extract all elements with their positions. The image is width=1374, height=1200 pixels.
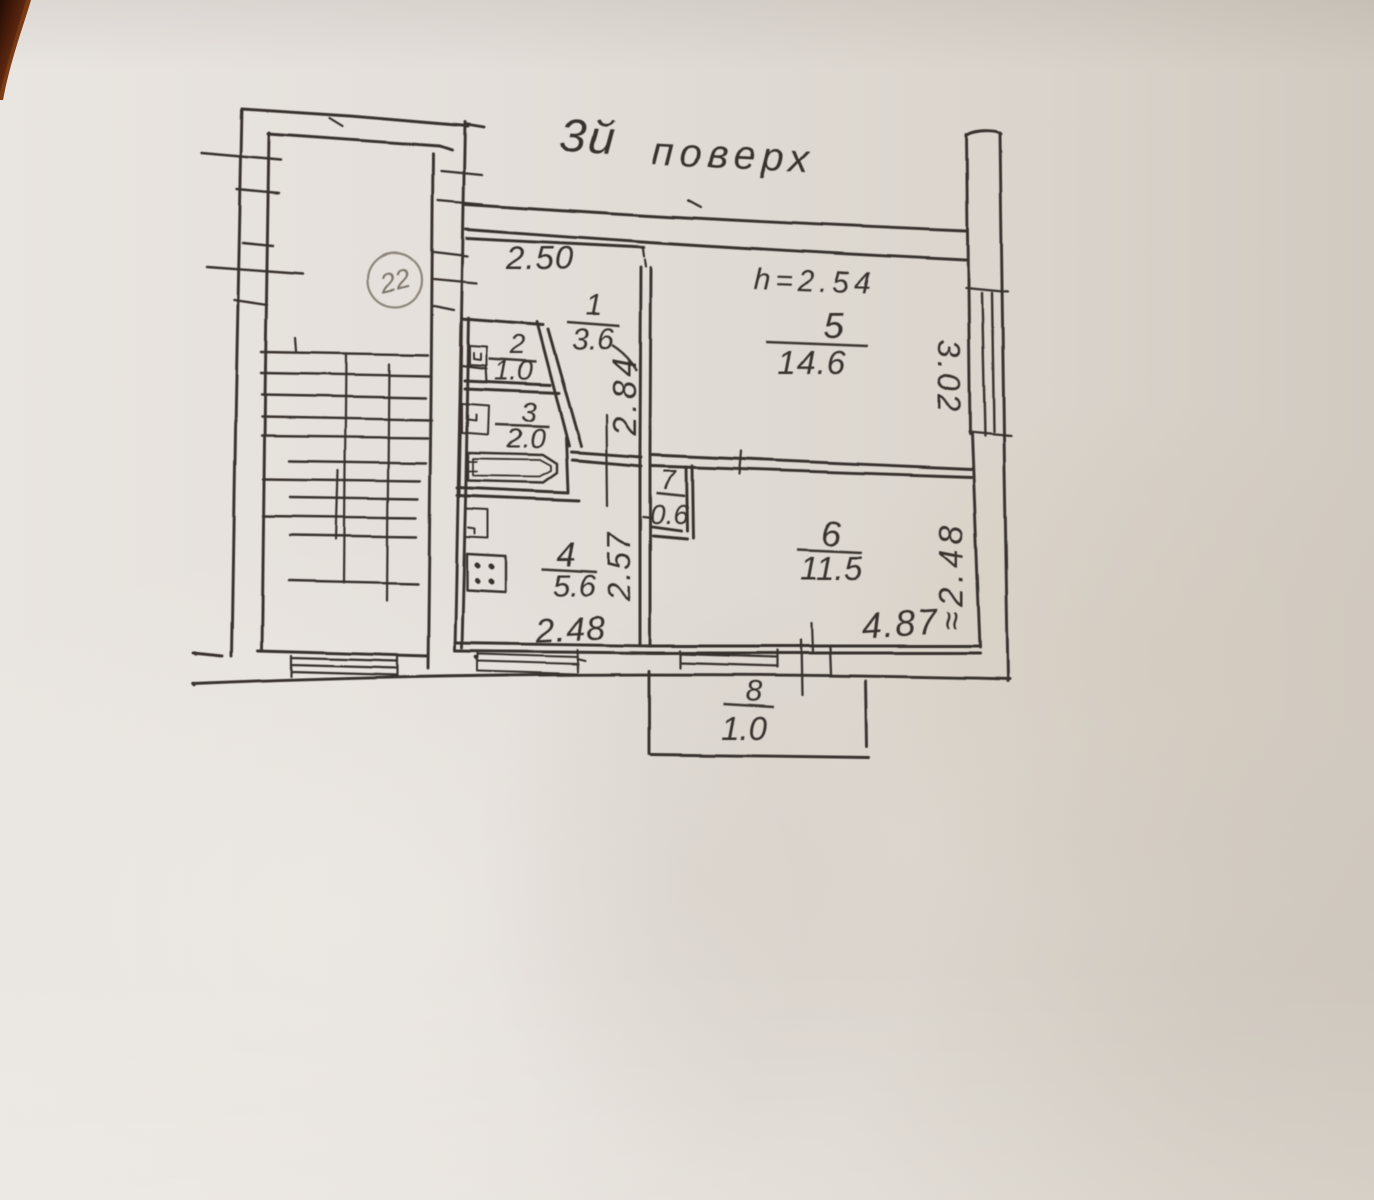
svg-text:3й: 3й	[558, 108, 618, 165]
svg-text:h=2.54: h=2.54	[753, 263, 877, 300]
svg-text:5: 5	[823, 305, 844, 346]
svg-text:14.6: 14.6	[778, 344, 846, 381]
svg-text:2.84: 2.84	[606, 354, 644, 437]
svg-text:1.0: 1.0	[721, 710, 768, 747]
svg-text:поверх: поверх	[651, 129, 817, 181]
svg-text:1.0: 1.0	[495, 355, 534, 386]
svg-text:6: 6	[821, 513, 842, 554]
svg-text:≈2.48: ≈2.48	[933, 520, 971, 630]
svg-text:4.87: 4.87	[860, 600, 941, 646]
svg-text:0.6: 0.6	[650, 499, 689, 530]
svg-text:3.6: 3.6	[572, 323, 614, 356]
svg-text:3.02: 3.02	[931, 340, 967, 414]
svg-text:8: 8	[746, 675, 763, 708]
svg-text:2.0: 2.0	[506, 423, 546, 454]
svg-text:2.57: 2.57	[601, 531, 637, 602]
svg-text:2.50: 2.50	[505, 239, 574, 276]
svg-text:11.5: 11.5	[800, 550, 862, 587]
svg-text:2.48: 2.48	[533, 609, 606, 651]
svg-text:5.6: 5.6	[552, 568, 596, 603]
svg-text:7: 7	[660, 464, 677, 495]
svg-text:1: 1	[586, 289, 603, 322]
